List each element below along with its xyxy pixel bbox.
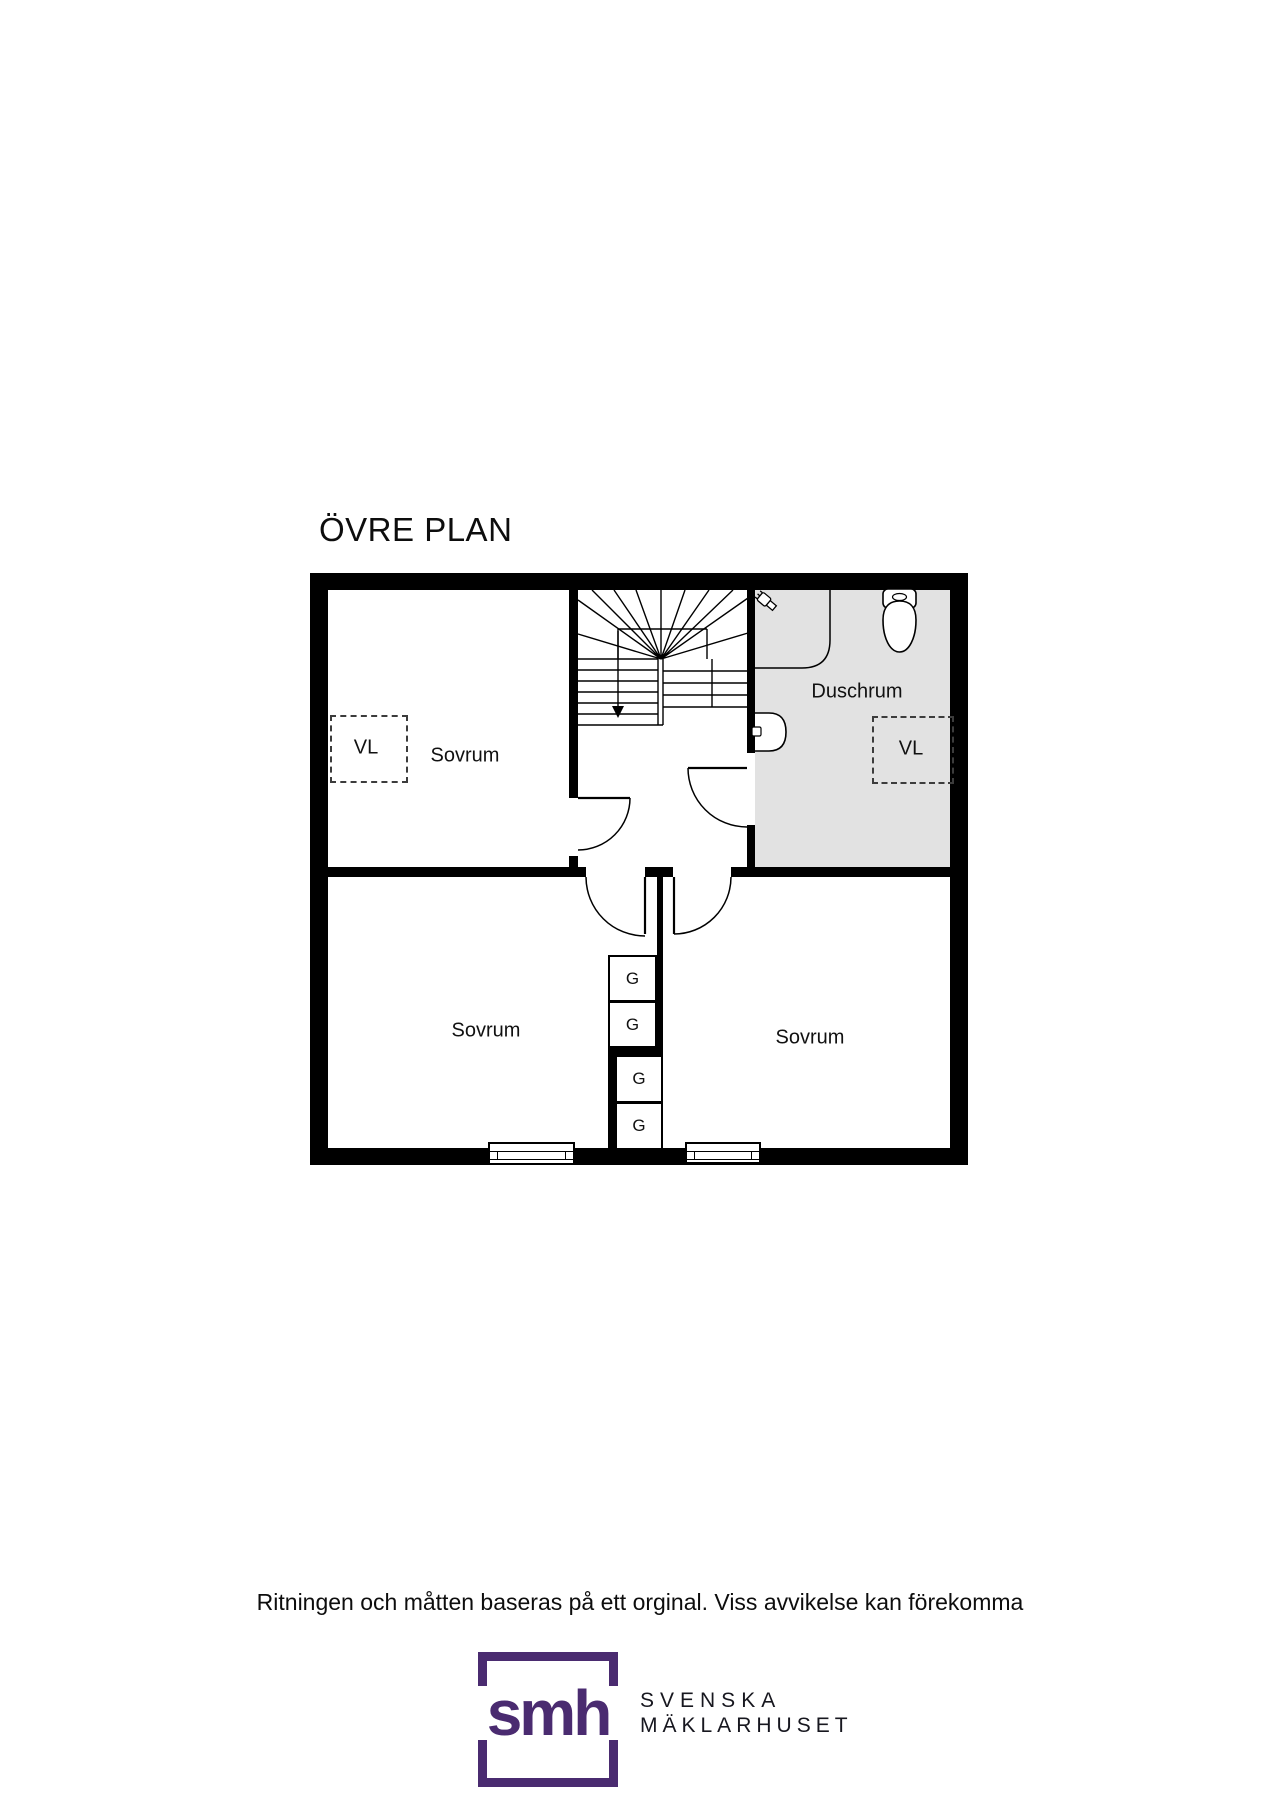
outer-wall-right [950,573,968,1165]
wall-middle-stub [645,867,673,877]
room-label-sovrum-bottom-left: Sovrum [452,1020,521,1043]
smh-logo-monogram: smh [466,1686,630,1740]
room-label-sovrum-top-left: Sovrum [431,745,500,768]
stairs-down-arrow [612,631,624,718]
wall-bedroom-stairs-stub [569,856,578,867]
door-bedroom-bottom-left [586,877,645,936]
brand-name-line1: SVENSKA [640,1689,781,1713]
door-bedroom-top-left [578,798,630,850]
staircase [578,590,748,725]
wall-stairs-duschrum-lower [747,825,755,867]
wall-middle-left [328,867,586,877]
wardrobe-box: G [615,1102,663,1150]
window-left [488,1142,575,1165]
window-endcap [686,1152,695,1159]
room-label-duschrum: Duschrum [811,681,902,704]
door-bedroom-bottom-right [674,877,731,934]
wardrobe-box: G [608,1001,657,1048]
plan-linework [0,0,1280,1810]
window-endcap [565,1152,574,1159]
outer-wall-bottom [310,1148,968,1165]
wall-divider-jog [608,1048,663,1055]
wall-stairs-duschrum-upper [747,590,755,753]
door-duschrum [688,768,747,827]
window-glass-lines [489,1151,574,1160]
wardrobe-label: G [632,1116,645,1136]
wardrobe-label: G [626,1015,639,1035]
wardrobe-label: G [626,969,639,989]
wardrobe-label: G [632,1069,645,1089]
outer-wall-left [310,573,328,1165]
brand-name-line2: MÄKLARHUSET [640,1714,853,1738]
floorplan-page: ÖVRE PLAN G G G G [0,0,1280,1810]
wardrobe-box: G [615,1055,663,1103]
wall-middle-right [731,867,950,877]
page-title: ÖVRE PLAN [319,511,512,549]
wall-divider-upper [657,877,663,1055]
window-glass-lines [686,1151,760,1160]
wall-bedroom-stairs [569,590,578,798]
wardrobe-box: G [608,955,657,1002]
wall-divider-lower [608,1055,615,1148]
room-label-sovrum-bottom-right: Sovrum [776,1027,845,1050]
window-endcap [751,1152,760,1159]
room-label-vl-duschrum: VL [899,738,923,761]
window-endcap [489,1152,498,1159]
disclaimer-text: Ritningen och måtten baseras på ett orgi… [0,1589,1280,1616]
outer-wall-top [310,573,968,590]
window-right [685,1142,761,1164]
room-label-vl-bedroom: VL [354,737,378,760]
